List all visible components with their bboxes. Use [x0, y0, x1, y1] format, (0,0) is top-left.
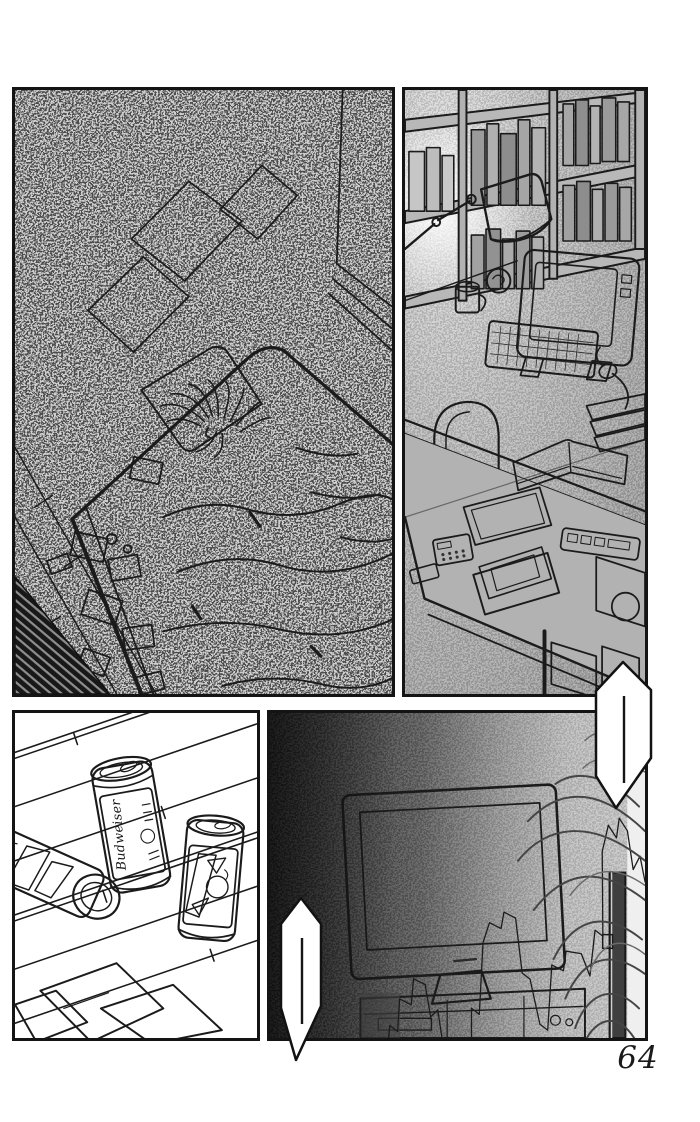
- speech-bubble-upper-right: [588, 658, 660, 816]
- desk-art: [405, 90, 645, 694]
- panel-desk: [402, 87, 648, 697]
- grain-overlay: [15, 90, 392, 694]
- bedroom-art: [15, 90, 392, 694]
- page-number: 64: [608, 1040, 668, 1080]
- panel-bedroom: [12, 87, 395, 697]
- bubble-shape: [588, 658, 660, 816]
- manga-page: Budweiser: [0, 0, 700, 1122]
- cans-art: Budweiser: [15, 713, 257, 1038]
- speech-bubble-lower-left: [274, 894, 328, 1066]
- panel-beer-cans: Budweiser: [12, 710, 260, 1041]
- bubble-shape: [274, 894, 328, 1066]
